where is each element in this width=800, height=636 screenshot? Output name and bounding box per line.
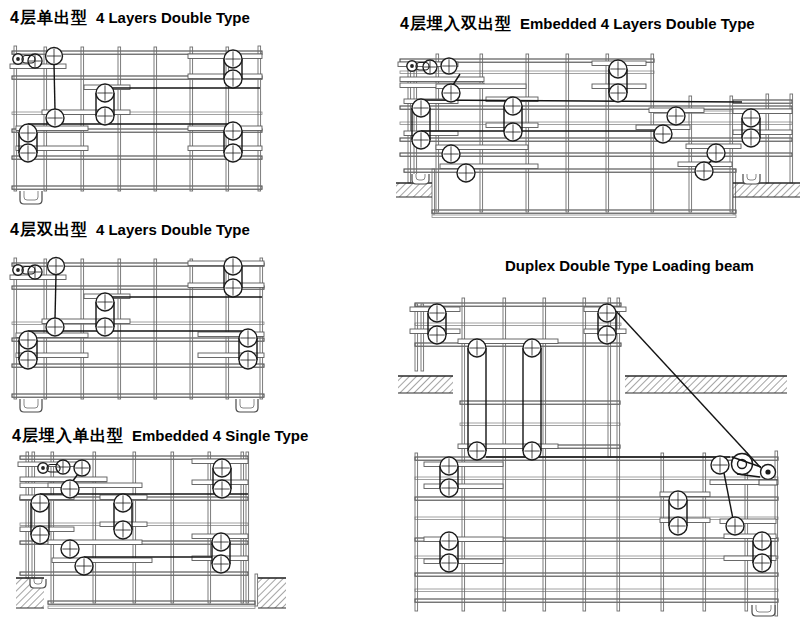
diagram-embedded-4-single-type — [12, 446, 290, 634]
caption-zh: 4层埋入双出型 — [400, 14, 512, 35]
technical-drawing-sheet: 4层单出型 4 Layers Double Type 4层埋入双出型 Embed… — [0, 0, 800, 636]
diagram-embedded-4-layers-double-type — [396, 44, 800, 252]
caption-zh: 4层单出型 — [10, 8, 88, 29]
caption-en: 4 Layers Double Type — [96, 221, 250, 238]
caption-en: Duplex Double Type Loading beam — [505, 257, 754, 274]
caption-4-layers-double-out: 4层双出型 4 Layers Double Type — [10, 220, 250, 241]
caption-zh: 4层双出型 — [10, 220, 88, 241]
caption-embedded-4-single: 4层埋入单出型 Embedded 4 Single Type — [12, 426, 308, 447]
diagram-duplex-double-type-loading-beam — [398, 281, 800, 631]
caption-4-layers-single-out: 4层单出型 4 Layers Double Type — [10, 8, 250, 29]
caption-en: Embedded 4 Layers Double Type — [520, 15, 755, 32]
caption-en: Embedded 4 Single Type — [132, 427, 308, 444]
caption-en: 4 Layers Double Type — [96, 9, 250, 26]
diagram-4-layers-single-out-type — [8, 42, 266, 214]
caption-embedded-4-layers-double: 4层埋入双出型 Embedded 4 Layers Double Type — [400, 14, 755, 35]
caption-zh: 4层埋入单出型 — [12, 426, 124, 447]
diagram-4-layers-double-out-type — [8, 254, 272, 420]
caption-duplex-loading-beam: Duplex Double Type Loading beam — [505, 257, 754, 274]
